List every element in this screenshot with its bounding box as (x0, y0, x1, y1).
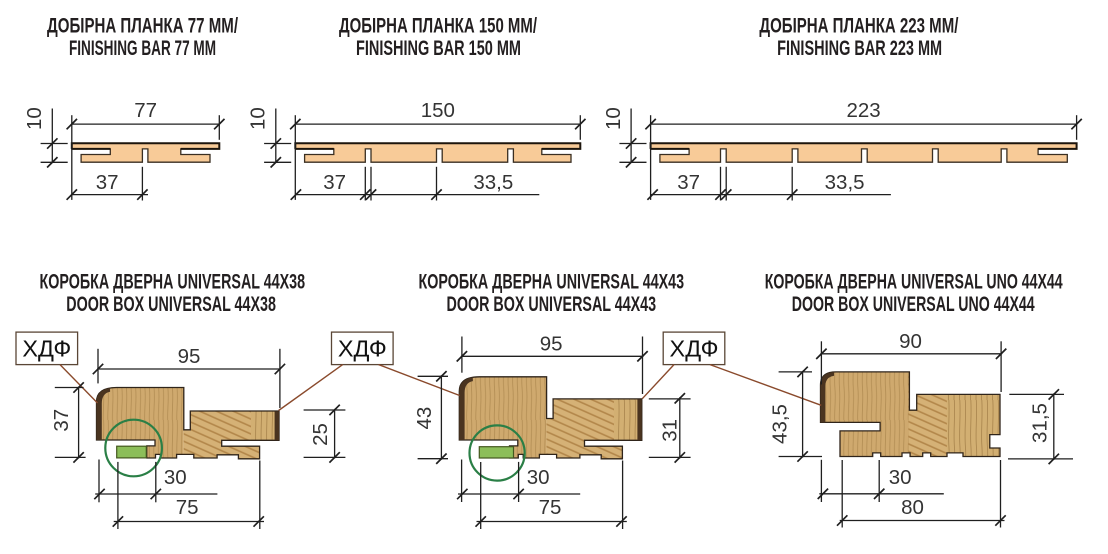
svg-text:30: 30 (889, 466, 912, 489)
svg-text:КОРОБКА ДВЕРНА UNIVERSAL 44Х43: КОРОБКА ДВЕРНА UNIVERSAL 44Х43 (419, 269, 685, 293)
svg-text:25: 25 (309, 423, 332, 446)
svg-text:43: 43 (413, 407, 436, 430)
svg-text:75: 75 (176, 496, 199, 519)
svg-text:ДОБІРНА ПЛАНКА 77 ММ/: ДОБІРНА ПЛАНКА 77 ММ/ (47, 13, 238, 37)
svg-text:ХДФ: ХДФ (670, 336, 719, 362)
svg-text:37: 37 (50, 409, 73, 432)
svg-text:FINISHING BAR 223 MM: FINISHING BAR 223 MM (777, 36, 942, 60)
svg-text:75: 75 (539, 496, 562, 519)
svg-text:90: 90 (899, 330, 922, 353)
svg-text:30: 30 (164, 466, 187, 489)
svg-text:33,5: 33,5 (473, 171, 513, 194)
svg-text:FINISHING BAR 150 MM: FINISHING BAR 150 MM (356, 36, 521, 60)
svg-text:FINISHING BAR 77 MM: FINISHING BAR 77 MM (69, 36, 216, 60)
svg-text:ХДФ: ХДФ (338, 336, 387, 362)
svg-text:150: 150 (421, 99, 455, 122)
svg-text:80: 80 (901, 496, 924, 519)
svg-text:DOOR BOX UNIVERSAL UNO 44Х44: DOOR BOX UNIVERSAL UNO 44Х44 (792, 292, 1035, 316)
svg-text:DOOR BOX UNIVERSAL 44Х38: DOOR BOX UNIVERSAL 44Х38 (66, 292, 276, 316)
svg-text:43,5: 43,5 (769, 404, 792, 444)
svg-text:10: 10 (602, 107, 625, 130)
svg-text:37: 37 (677, 171, 700, 194)
svg-text:37: 37 (323, 171, 346, 194)
svg-text:30: 30 (527, 466, 550, 489)
svg-text:ДОБІРНА ПЛАНКА 150 ММ/: ДОБІРНА ПЛАНКА 150 ММ/ (339, 13, 537, 37)
svg-text:31,5: 31,5 (1029, 403, 1052, 443)
svg-text:31: 31 (659, 419, 682, 442)
svg-text:77: 77 (134, 99, 157, 122)
svg-text:10: 10 (23, 107, 46, 130)
svg-text:223: 223 (846, 99, 880, 122)
svg-text:37: 37 (96, 171, 119, 194)
svg-text:КОРОБКА ДВЕРНА UNIVERSAL UNO 4: КОРОБКА ДВЕРНА UNIVERSAL UNO 44Х44 (765, 269, 1063, 293)
svg-text:DOOR BOX UNIVERSAL 44Х43: DOOR BOX UNIVERSAL 44Х43 (447, 292, 657, 316)
svg-text:КОРОБКА ДВЕРНА UNIVERSAL 44Х38: КОРОБКА ДВЕРНА UNIVERSAL 44Х38 (40, 269, 306, 293)
svg-text:ДОБІРНА ПЛАНКА 223 ММ/: ДОБІРНА ПЛАНКА 223 ММ/ (759, 13, 958, 37)
svg-text:95: 95 (540, 332, 563, 355)
svg-text:33,5: 33,5 (825, 171, 865, 194)
svg-text:ХДФ: ХДФ (22, 336, 71, 362)
svg-text:10: 10 (247, 107, 270, 130)
svg-text:95: 95 (178, 345, 201, 368)
